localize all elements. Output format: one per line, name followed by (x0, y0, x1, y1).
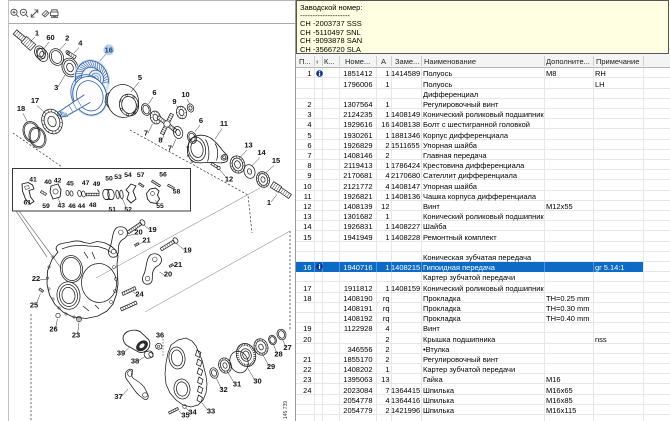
svg-text:37: 37 (114, 392, 122, 401)
svg-text:1: 1 (267, 198, 271, 207)
svg-text:43: 43 (58, 203, 66, 210)
svg-text:32: 32 (219, 385, 227, 394)
svg-text:11: 11 (220, 119, 228, 128)
svg-text:18: 18 (17, 104, 25, 113)
svg-text:145 739: 145 739 (283, 401, 289, 419)
svg-text:47: 47 (82, 180, 90, 187)
svg-text:16: 16 (105, 46, 113, 55)
svg-text:17: 17 (31, 96, 39, 105)
svg-text:42: 42 (54, 178, 62, 185)
svg-text:13: 13 (244, 141, 252, 150)
svg-text:30: 30 (253, 377, 261, 386)
svg-text:45: 45 (66, 181, 74, 188)
svg-text:55: 55 (156, 203, 164, 210)
svg-text:23: 23 (72, 331, 80, 340)
svg-text:14: 14 (257, 148, 266, 157)
svg-text:51: 51 (109, 206, 117, 213)
svg-text:21: 21 (142, 236, 150, 245)
svg-text:36: 36 (156, 331, 164, 340)
svg-text:21: 21 (174, 260, 182, 269)
svg-text:61: 61 (24, 200, 32, 207)
svg-text:48: 48 (89, 202, 97, 209)
svg-text:22: 22 (32, 274, 40, 283)
svg-text:7: 7 (144, 129, 148, 138)
svg-text:3: 3 (54, 83, 58, 92)
svg-text:56: 56 (159, 171, 167, 178)
svg-text:1: 1 (35, 29, 39, 38)
svg-text:10: 10 (181, 90, 189, 99)
svg-text:28: 28 (274, 350, 282, 359)
svg-text:60: 60 (46, 33, 54, 42)
svg-text:59: 59 (42, 203, 50, 210)
svg-text:58: 58 (173, 188, 181, 195)
svg-text:39: 39 (117, 349, 125, 358)
svg-text:24: 24 (135, 290, 144, 299)
svg-text:12: 12 (225, 175, 233, 184)
svg-text:38: 38 (131, 357, 139, 366)
svg-text:15: 15 (272, 156, 280, 165)
svg-text:5: 5 (138, 73, 142, 82)
svg-text:9: 9 (172, 97, 176, 106)
svg-text:50: 50 (105, 176, 113, 183)
svg-text:57: 57 (137, 172, 145, 179)
svg-text:7: 7 (168, 144, 172, 153)
svg-text:44: 44 (78, 203, 86, 210)
svg-text:41: 41 (29, 176, 37, 183)
svg-text:54: 54 (124, 172, 132, 179)
svg-text:20: 20 (164, 270, 172, 279)
svg-text:26: 26 (49, 325, 57, 334)
svg-text:2: 2 (65, 34, 69, 43)
svg-text:4: 4 (78, 38, 83, 47)
svg-text:52: 52 (124, 206, 132, 213)
svg-text:8: 8 (158, 136, 162, 145)
svg-text:49: 49 (93, 181, 101, 188)
svg-text:6: 6 (152, 88, 156, 97)
svg-text:31: 31 (233, 380, 241, 389)
svg-text:46: 46 (68, 203, 76, 210)
svg-text:53: 53 (114, 174, 122, 181)
svg-text:6: 6 (199, 116, 203, 125)
svg-text:29: 29 (267, 362, 275, 371)
svg-text:33: 33 (207, 407, 215, 416)
svg-text:40: 40 (44, 179, 52, 186)
